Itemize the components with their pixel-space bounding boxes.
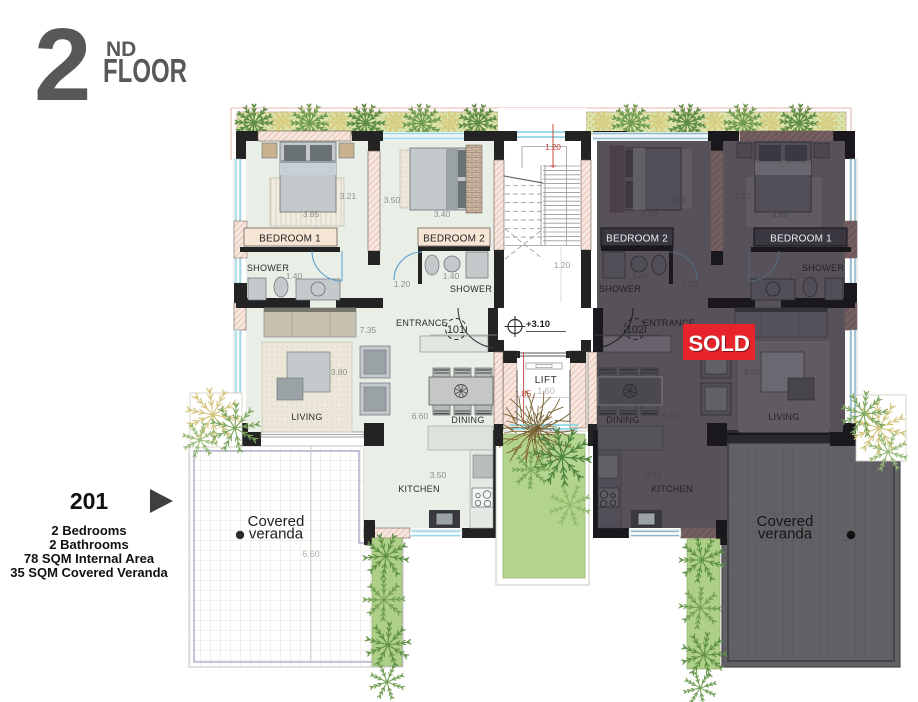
svg-text:1.20: 1.20 xyxy=(681,279,698,289)
svg-text:2 Bathrooms: 2 Bathrooms xyxy=(49,537,128,552)
svg-text:3.21: 3.21 xyxy=(735,191,752,201)
svg-text:6.60: 6.60 xyxy=(663,411,680,421)
svg-text:1.20: 1.20 xyxy=(545,143,561,152)
svg-text:35 SQM Covered Veranda: 35 SQM Covered Veranda xyxy=(10,565,168,580)
svg-text:BEDROOM 1: BEDROOM 1 xyxy=(770,234,832,245)
svg-text:BEDROOM 2: BEDROOM 2 xyxy=(606,234,668,245)
svg-text:LIFT: LIFT xyxy=(535,375,558,386)
svg-text:veranda: veranda xyxy=(249,526,304,543)
svg-text:3.50: 3.50 xyxy=(670,195,687,205)
svg-text:3.40: 3.40 xyxy=(641,209,658,219)
svg-text:7.35: 7.35 xyxy=(360,325,377,335)
svg-text:BEDROOM 2: BEDROOM 2 xyxy=(423,234,485,245)
svg-text:1.50: 1.50 xyxy=(789,271,806,281)
svg-text:SOLD: SOLD xyxy=(688,331,749,356)
svg-text:1.40: 1.40 xyxy=(632,271,649,281)
svg-text:veranda: veranda xyxy=(758,526,813,543)
svg-text:BEDROOM 1: BEDROOM 1 xyxy=(259,234,321,245)
svg-text:2 Bedrooms: 2 Bedrooms xyxy=(51,523,126,538)
svg-text:6.60: 6.60 xyxy=(302,549,320,559)
svg-text:1.20: 1.20 xyxy=(394,279,411,289)
svg-text:LIVING: LIVING xyxy=(291,412,322,422)
svg-text:3.21: 3.21 xyxy=(340,191,357,201)
svg-text:3.80: 3.80 xyxy=(331,367,348,377)
svg-text:1.60: 1.60 xyxy=(537,386,555,396)
svg-text:KITCHEN: KITCHEN xyxy=(398,484,440,494)
svg-text:3.80: 3.80 xyxy=(744,367,761,377)
svg-text:SHOWER: SHOWER xyxy=(450,284,493,294)
svg-text:3.40: 3.40 xyxy=(434,209,451,219)
svg-text:3.50: 3.50 xyxy=(384,195,401,205)
svg-text:101: 101 xyxy=(447,324,465,336)
svg-text:2: 2 xyxy=(34,7,91,122)
svg-text:SHOWER: SHOWER xyxy=(802,263,845,273)
svg-text:SHOWER: SHOWER xyxy=(247,263,290,273)
svg-text:FLOOR: FLOOR xyxy=(103,52,187,89)
svg-text:KITCHEN: KITCHEN xyxy=(651,484,693,494)
svg-text:1.20: 1.20 xyxy=(554,260,571,270)
svg-text:DINING: DINING xyxy=(606,415,639,425)
svg-text:+3.10: +3.10 xyxy=(526,319,550,330)
svg-text:3.85: 3.85 xyxy=(303,209,320,219)
svg-text:3.85: 3.85 xyxy=(772,209,789,219)
svg-text:1.40: 1.40 xyxy=(443,271,460,281)
svg-text:3.50: 3.50 xyxy=(645,470,662,480)
svg-text:1.40: 1.40 xyxy=(286,271,303,281)
svg-text:ENTRANCE: ENTRANCE xyxy=(396,318,448,328)
svg-text:201: 201 xyxy=(70,488,109,514)
svg-text:DINING: DINING xyxy=(451,415,484,425)
svg-text:3.50: 3.50 xyxy=(430,470,447,480)
svg-text:102: 102 xyxy=(626,324,644,336)
svg-text:LIVING: LIVING xyxy=(768,412,799,422)
svg-text:78 SQM Internal Area: 78 SQM Internal Area xyxy=(24,551,155,566)
svg-text:SHOWER: SHOWER xyxy=(599,284,642,294)
svg-text:6.60: 6.60 xyxy=(412,411,429,421)
